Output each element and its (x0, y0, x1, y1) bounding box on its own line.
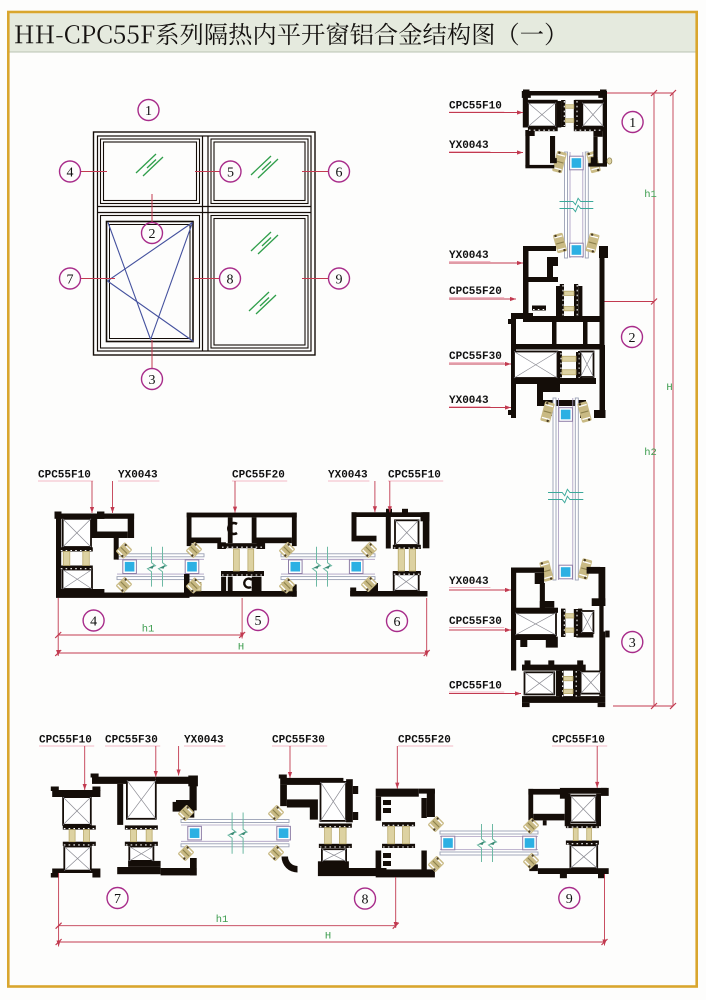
svg-text:YX0043: YX0043 (118, 470, 158, 482)
svg-text:9: 9 (566, 892, 573, 907)
svg-text:8: 8 (362, 893, 369, 908)
svg-text:CPC55F10: CPC55F10 (449, 101, 502, 113)
svg-text:2: 2 (149, 227, 156, 242)
svg-text:CPC55F30: CPC55F30 (449, 616, 502, 628)
svg-text:2: 2 (629, 331, 636, 346)
svg-text:5: 5 (227, 166, 234, 181)
svg-text:9: 9 (336, 273, 343, 288)
svg-text:7: 7 (114, 892, 121, 907)
svg-text:YX0043: YX0043 (449, 140, 489, 152)
svg-text:6: 6 (336, 166, 343, 181)
svg-text:1: 1 (145, 104, 152, 119)
svg-text:CPC55F10: CPC55F10 (552, 735, 605, 747)
svg-text:CPC55F20: CPC55F20 (232, 470, 285, 482)
svg-text:YX0043: YX0043 (184, 735, 224, 747)
svg-text:3: 3 (149, 373, 156, 388)
svg-text:YX0043: YX0043 (328, 470, 368, 482)
svg-text:CPC55F30: CPC55F30 (449, 351, 502, 363)
svg-text:CPC55F20: CPC55F20 (398, 735, 451, 747)
svg-text:CPC55F20: CPC55F20 (449, 286, 502, 298)
svg-text:H: H (238, 642, 244, 654)
svg-text:h2: h2 (644, 447, 657, 459)
svg-text:7: 7 (67, 273, 74, 288)
svg-text:H: H (325, 931, 331, 943)
svg-text:CPC55F10: CPC55F10 (388, 470, 441, 482)
svg-text:CPC55F30: CPC55F30 (272, 735, 325, 747)
svg-text:YX0043: YX0043 (449, 250, 489, 262)
svg-text:CPC55F10: CPC55F10 (39, 735, 92, 747)
svg-text:CPC55F10: CPC55F10 (449, 681, 502, 693)
svg-text:h1: h1 (644, 189, 657, 201)
svg-text:3: 3 (629, 636, 636, 651)
svg-text:1: 1 (629, 116, 636, 131)
svg-text:6: 6 (394, 615, 401, 630)
svg-text:H: H (666, 382, 672, 394)
svg-text:YX0043: YX0043 (449, 395, 489, 407)
svg-text:4: 4 (67, 166, 74, 181)
svg-text:YX0043: YX0043 (449, 576, 489, 588)
svg-text:5: 5 (255, 614, 262, 629)
svg-text:CPC55F30: CPC55F30 (105, 735, 158, 747)
svg-text:CPC55F10: CPC55F10 (38, 470, 91, 482)
svg-text:8: 8 (227, 273, 234, 288)
svg-text:h1: h1 (216, 914, 229, 926)
svg-text:h1: h1 (142, 624, 155, 636)
svg-text:4: 4 (90, 615, 97, 630)
